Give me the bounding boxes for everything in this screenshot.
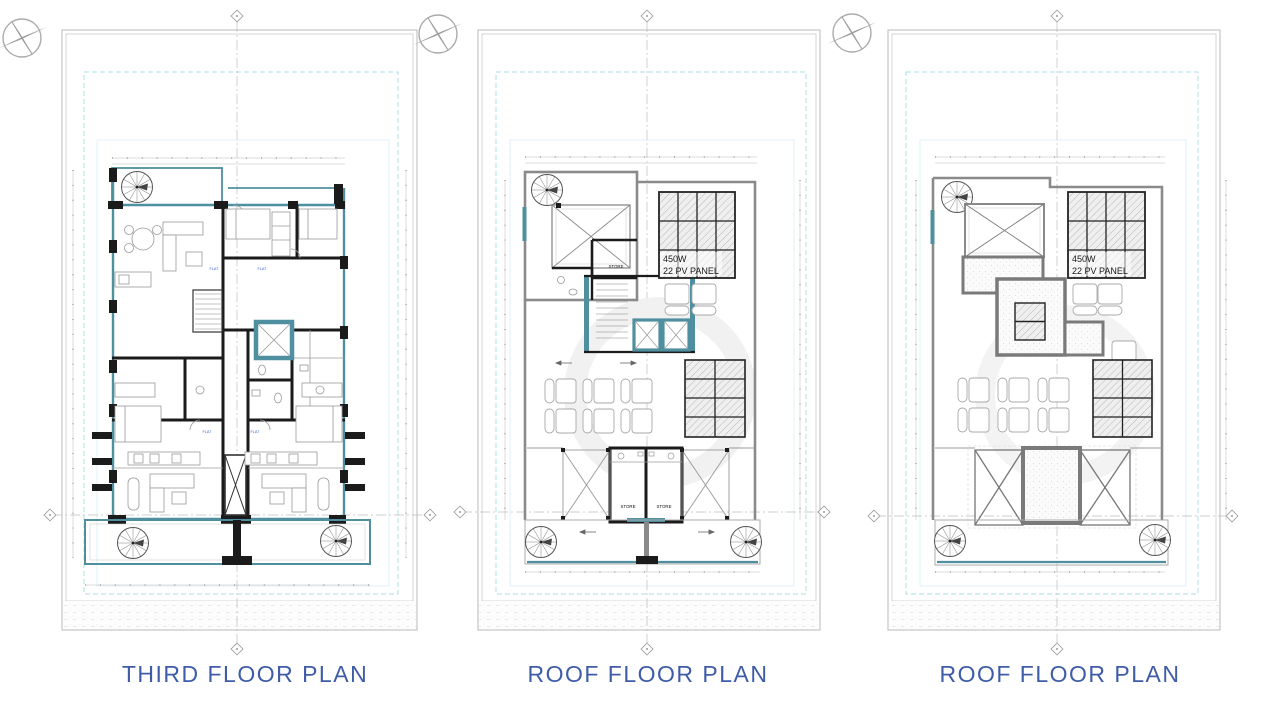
skylight-x: [965, 204, 1044, 257]
roof-building-1: STORE: [523, 172, 762, 564]
sheet-roof-plan-2: 450W 22 PV PANEL: [827, 10, 1238, 687]
third-floor-building: FLAT FLAT FLAT FLAT: [85, 168, 370, 565]
glazing: [523, 207, 527, 241]
bottom-balcony: [525, 520, 760, 564]
pv-panel-array: [685, 360, 745, 437]
drawing-canvas: FLAT FLAT FLAT FLAT THIRD FLOOR PLAN: [0, 0, 1280, 702]
pv-label-count: 22 PV PANEL: [1072, 266, 1128, 276]
spiral-stair-icon: [118, 528, 149, 559]
sheet-title: ROOF FLOOR PLAN: [939, 661, 1180, 687]
grid-marker-icon: [231, 643, 243, 655]
grid-marker-icon: [44, 509, 56, 521]
sun-lounger: [1098, 284, 1122, 315]
sheet-third-floor-plan: FLAT FLAT FLAT FLAT THIRD FLOOR PLAN: [0, 10, 436, 687]
north-compass-icon: [413, 15, 463, 53]
roof-building-2: 450W 22 PV PANEL: [931, 178, 1171, 565]
spiral-stair-icon: [935, 526, 966, 557]
grid-marker-icon: [641, 10, 653, 22]
grid-marker-icon: [1226, 510, 1238, 522]
flat-label: FLAT: [257, 267, 267, 271]
elevator-overrun-hatch: [1015, 303, 1045, 340]
store-label: STORE: [620, 504, 635, 509]
glazing: [931, 210, 935, 244]
spiral-stair-icon: [1140, 525, 1171, 556]
sheet-title: ROOF FLOOR PLAN: [527, 661, 768, 687]
store-label: STORE: [608, 264, 623, 269]
grid-marker-icon: [641, 643, 653, 655]
north-compass-icon: [827, 14, 877, 52]
north-compass-icon: [0, 19, 47, 57]
pv-panel-array: [1093, 360, 1152, 437]
floor-plan-drawing: FLAT FLAT FLAT FLAT THIRD FLOOR PLAN: [0, 0, 1280, 702]
elevator-shaft: [634, 320, 689, 350]
spiral-stair-icon: [122, 172, 153, 203]
spiral-stair-icon: [526, 527, 557, 558]
spiral-stair-icon: [731, 527, 762, 558]
duct-shaft: [225, 455, 246, 515]
stair-core: [193, 290, 222, 332]
sun-lounger-group: [958, 378, 1069, 432]
pv-panel-array: 450W 22 PV PANEL: [659, 192, 735, 278]
grid-marker-icon: [868, 510, 880, 522]
site-ground-strip: [63, 601, 416, 629]
sun-lounger: [692, 284, 716, 315]
pv-label-count: 22 PV PANEL: [663, 266, 719, 276]
pv-panel-array: 450W 22 PV PANEL: [1068, 192, 1145, 278]
spiral-stair-icon: [321, 526, 352, 557]
sun-lounger-group: [545, 379, 652, 433]
elevator-shaft: [256, 322, 292, 358]
sun-lounger: [1073, 284, 1097, 315]
grid-marker-icon: [1051, 643, 1063, 655]
flat-label: FLAT: [202, 430, 212, 434]
pv-label-watts: 450W: [1072, 254, 1096, 264]
site-ground-strip: [889, 601, 1219, 629]
grid-marker-icon: [231, 10, 243, 22]
flat-label: FLAT: [209, 267, 219, 271]
grid-marker-icon: [1051, 10, 1063, 22]
spiral-stair-icon: [532, 175, 563, 206]
store-rooms-bottom: STORE STORE: [610, 448, 682, 522]
grid-marker-icon: [454, 506, 466, 518]
sun-lounger: [665, 284, 689, 315]
sheet-roof-plan-1: STORE: [413, 10, 830, 687]
site-ground-strip: [479, 601, 819, 629]
store-label: STORE: [656, 504, 671, 509]
pv-label-watts: 450W: [663, 254, 687, 264]
sheet-title: THIRD FLOOR PLAN: [122, 661, 368, 687]
grid-marker-icon: [424, 509, 436, 521]
bottom-balcony: [935, 520, 1168, 565]
flat-label: FLAT: [250, 430, 260, 434]
